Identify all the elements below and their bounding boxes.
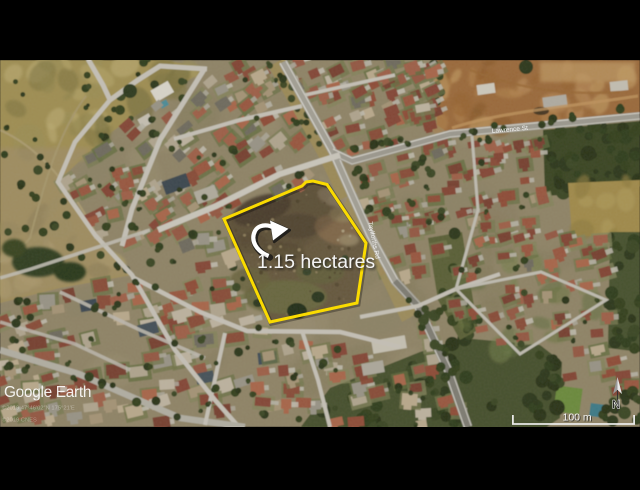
svg-text:Google Earth: Google Earth: [4, 384, 91, 401]
svg-text:100 m: 100 m: [563, 411, 592, 423]
svg-text:©2019 47°46′02″N 175°21′E: ©2019 47°46′02″N 175°21′E: [2, 405, 75, 412]
svg-text:©2019 CNES: ©2019 CNES: [2, 417, 37, 424]
svg-text:1.15 hectares: 1.15 hectares: [257, 251, 375, 273]
svg-text:N: N: [612, 400, 620, 412]
